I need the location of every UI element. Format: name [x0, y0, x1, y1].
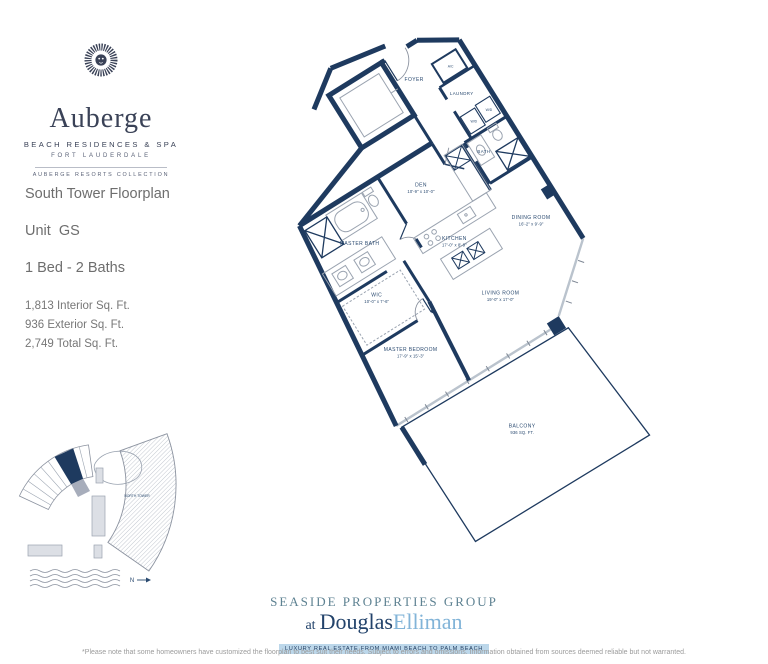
exterior-walls [217, 3, 615, 426]
wic-shelving [343, 270, 425, 345]
svg-text:BATH: BATH [477, 149, 490, 154]
svg-text:W/D: W/D [471, 120, 478, 124]
room-label-dining: DINING ROOM 16'-2" x 9'-9" [512, 215, 551, 227]
svg-text:MASTER BEDROOM: MASTER BEDROOM [384, 347, 438, 353]
footer-brand: SEASIDE PROPERTIES GROUP at DouglasEllim… [0, 594, 768, 655]
sun-icon [66, 26, 136, 96]
svg-text:KITCHEN: KITCHEN [442, 236, 467, 242]
logo-divider [35, 167, 167, 168]
brand-douglas: Douglas [320, 609, 393, 634]
room-label-kitchen: KITCHEN 17'-0" x 8'-9" [442, 236, 467, 248]
room-label-den: DEN 10'-9" x 10'-0" [407, 182, 435, 194]
disclaimer-text: *Please note that some homeowners have c… [0, 649, 768, 656]
seaside-group-label: SEASIDE PROPERTIES GROUP [0, 594, 768, 610]
svg-text:WIC: WIC [371, 293, 382, 299]
svg-text:DEN: DEN [415, 182, 427, 188]
total-sqft: 2,749 Total Sq. Ft. [25, 335, 170, 354]
unit-info: South Tower Floorplan Unit GS 1 Bed - 2 … [25, 186, 170, 354]
svg-text:BALCONY: BALCONY [509, 423, 536, 429]
compass-north: N [130, 578, 151, 585]
svg-text:19'-0" x 17'-0": 19'-0" x 17'-0" [487, 297, 515, 302]
unit-number: Unit GS [25, 223, 170, 239]
brand-tagline: BEACH RESIDENCES & SPA [12, 140, 190, 149]
south-tower-footprint [19, 445, 93, 510]
svg-text:W/D: W/D [486, 108, 493, 112]
svg-text:10'-0" x 7'-6": 10'-0" x 7'-6" [364, 299, 389, 304]
svg-text:FOYER: FOYER [405, 77, 424, 83]
svg-text:10'-9" x 10'-0": 10'-9" x 10'-0" [407, 189, 435, 194]
brand-location: FORT LAUDERDALE [12, 153, 190, 159]
room-label-wd2: W/D [486, 108, 493, 112]
floorplan-sheet: Auberge BEACH RESIDENCES & SPA FORT LAUD… [0, 0, 768, 664]
page-title: South Tower Floorplan [25, 186, 170, 202]
room-label-wic: WIC 10'-0" x 7'-6" [364, 293, 389, 305]
structural-column [547, 316, 566, 335]
brand-name: Auberge [12, 103, 190, 135]
svg-text:N: N [130, 578, 134, 584]
svg-text:17'-9" x 15'-3": 17'-9" x 15'-3" [397, 353, 425, 358]
room-label-ac: A/C [448, 65, 454, 69]
room-label-living: LIVING ROOM 19'-0" x 17'-0" [482, 291, 520, 303]
svg-text:A/C: A/C [448, 65, 454, 69]
site-keyplan: NORTH TOWER N [8, 430, 198, 600]
room-label-laundry: LAUNDRY [450, 91, 474, 96]
svg-text:MASTER BATH: MASTER BATH [340, 241, 380, 247]
svg-text:LIVING ROOM: LIVING ROOM [482, 291, 520, 297]
room-label-master-bath: MASTER BATH [340, 241, 380, 247]
svg-text:936 SQ. FT.: 936 SQ. FT. [510, 430, 533, 435]
north-tower-label: NORTH TOWER [124, 494, 150, 498]
room-label-foyer: FOYER [405, 77, 424, 83]
svg-text:DINING ROOM: DINING ROOM [512, 215, 551, 221]
room-label-bath: BATH [477, 149, 490, 154]
douglas-elliman-logo: at DouglasElliman [0, 611, 768, 637]
svg-text:16'-2" x 9'-9": 16'-2" x 9'-9" [519, 222, 544, 227]
auberge-logo: Auberge BEACH RESIDENCES & SPA FORT LAUD… [12, 26, 190, 178]
svg-text:17'-0" x 8'-9": 17'-0" x 8'-9" [442, 242, 467, 247]
room-label-master-bedroom: MASTER BEDROOM 17'-9" x 15'-3" [384, 347, 438, 359]
brand-elliman: Elliman [393, 609, 463, 634]
shoreline-waves [30, 570, 120, 588]
floorplan-drawing: FOYER A/C LAUNDRY W/D W/D BATH DEN 10'-9… [278, 28, 702, 584]
bed-bath-count: 1 Bed - 2 Baths [25, 260, 170, 276]
svg-text:LAUNDRY: LAUNDRY [450, 91, 474, 96]
room-label-wd1: W/D [471, 120, 478, 124]
glass-wall [364, 238, 615, 426]
interior-sqft: 1,813 Interior Sq. Ft. [25, 297, 170, 316]
room-label-balcony: BALCONY 936 SQ. FT. [509, 423, 536, 435]
exterior-sqft: 936 Exterior Sq. Ft. [25, 316, 170, 335]
brand-collection: AUBERGE RESORTS COLLECTION [12, 172, 190, 178]
at-label: at [305, 618, 315, 633]
